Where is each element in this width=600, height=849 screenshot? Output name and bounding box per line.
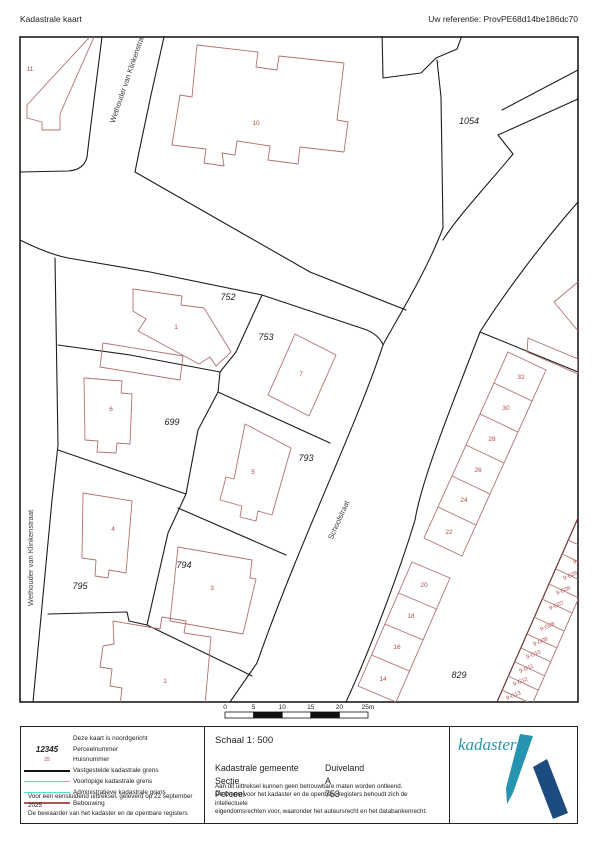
kadaster-logo-mark-navy: [533, 759, 568, 819]
legend-label: Deze kaart is noordgericht: [73, 735, 148, 742]
info-value: Duiveland: [325, 762, 364, 775]
legend-symbol: 12345: [21, 745, 73, 754]
legend-row: 12345Perceelnummer: [21, 744, 204, 755]
house-number-label: 16: [393, 644, 401, 651]
parcel-number-label: 753: [258, 332, 273, 342]
scale-bar-segment: [311, 712, 340, 718]
disclaimer-line: Aan dit uittreksel kunnen geen betrouwba…: [215, 783, 441, 791]
parcel-number-label: 795: [72, 581, 88, 591]
scale-bar-segment: [225, 712, 254, 718]
house-number-label: 4: [111, 526, 115, 533]
legend-symbol: [21, 770, 73, 772]
footer-box: Deze kaart is noordgericht12345Perceelnu…: [20, 726, 578, 824]
house-number-label: 6: [109, 406, 113, 413]
scale-bar-tick-label: 20: [336, 704, 344, 711]
cadastral-map-page: Kadastrale kaart Uw referentie: ProvPE68…: [0, 0, 600, 849]
legend-line-swatch: [24, 770, 70, 772]
legend-parcel-sample: 12345: [36, 745, 58, 754]
certification-line: De bewaarder van het kadaster en de open…: [28, 810, 204, 818]
house-number-label: 20: [420, 582, 428, 589]
scale-bar-tick-label: 15: [307, 704, 315, 711]
cadastral-map: 7527536997937947958291054111017654313230…: [0, 0, 600, 725]
parcel-number-label: 829: [451, 670, 466, 680]
house-number-label: 5: [251, 469, 255, 476]
legend-symbol: 25: [21, 757, 73, 763]
parcel-number-label: 752: [220, 292, 235, 302]
kadaster-logo: kadaster: [450, 727, 576, 821]
house-number-label: 24: [460, 497, 468, 504]
legend-label: Perceelnummer: [73, 746, 118, 753]
street-name-label: Wethouder van Klinkenstraat: [26, 509, 35, 606]
info-row: Kadastrale gemeenteDuiveland: [215, 762, 441, 775]
house-number-label: 26: [474, 467, 482, 474]
disclaimer-line: De Dienst voor het kadaster en de openba…: [215, 791, 441, 807]
house-number-label: 11: [27, 66, 34, 73]
parcel-number-label: 1054: [459, 116, 479, 126]
legend-line-swatch: [24, 781, 70, 783]
info-label: Kadastrale gemeente: [215, 762, 325, 775]
logo-panel: kadaster: [449, 727, 577, 823]
house-number-label: 10: [252, 120, 260, 127]
legend-row: Deze kaart is noordgericht: [21, 733, 204, 744]
house-number-label: 1: [163, 678, 167, 685]
scale-bar-segment: [339, 712, 368, 718]
disclaimer-line: eigendomsrechten voor, waaronder het aut…: [215, 808, 441, 816]
certification-line: Voor een eensluidend uittreksel, gelever…: [28, 793, 204, 809]
house-number-label: 7: [299, 371, 303, 378]
disclaimer-text: Aan dit uittreksel kunnen geen betrouwba…: [215, 783, 441, 816]
kadaster-logo-text: kadaster: [458, 735, 517, 754]
scale-bar-tick-label: 5: [252, 704, 256, 711]
legend-label: Voorlopige kadastrale grens: [73, 778, 152, 785]
scale-bar-tick-label: 25m: [362, 704, 375, 711]
scale-bar-tick-label: 0: [223, 704, 227, 711]
parcel-number-label: 699: [164, 417, 179, 427]
scale-bar: 0510152025m: [223, 704, 374, 718]
parcel-number-label: 793: [298, 453, 313, 463]
legend-row: Voorlopige kadastrale grens: [21, 776, 204, 787]
scale-bar-segment: [282, 712, 311, 718]
house-number-label: 30: [502, 405, 510, 412]
scale-bar-tick-label: 10: [279, 704, 287, 711]
legend-house-sample: 25: [44, 757, 50, 763]
house-number-label: 32: [517, 374, 525, 381]
house-number-label: 1: [174, 324, 178, 331]
legend-symbol: [21, 781, 73, 783]
house-number-label: 28: [488, 436, 496, 443]
scale-bar-segment: [254, 712, 283, 718]
certification-text: Voor een eensluidend uittreksel, gelever…: [28, 793, 204, 818]
parcel-number-label: 794: [176, 560, 191, 570]
map-frame: [20, 37, 578, 702]
scale-label: Schaal 1: 500: [215, 735, 441, 746]
legend-label: Vastgestelde kadastrale grens: [73, 767, 159, 774]
house-number-label: 18: [407, 613, 415, 620]
house-number-label: 3: [210, 585, 214, 592]
info-panel: Schaal 1: 500 Kadastrale gemeenteDuivela…: [204, 727, 449, 823]
legend-row: Vastgestelde kadastrale grens: [21, 765, 204, 776]
house-number-label: 22: [445, 529, 453, 536]
legend-panel: Deze kaart is noordgericht12345Perceelnu…: [21, 727, 204, 823]
legend-label: Huisnummer: [73, 756, 109, 763]
house-number-label: 14: [379, 676, 387, 683]
legend-row: 25Huisnummer: [21, 755, 204, 766]
